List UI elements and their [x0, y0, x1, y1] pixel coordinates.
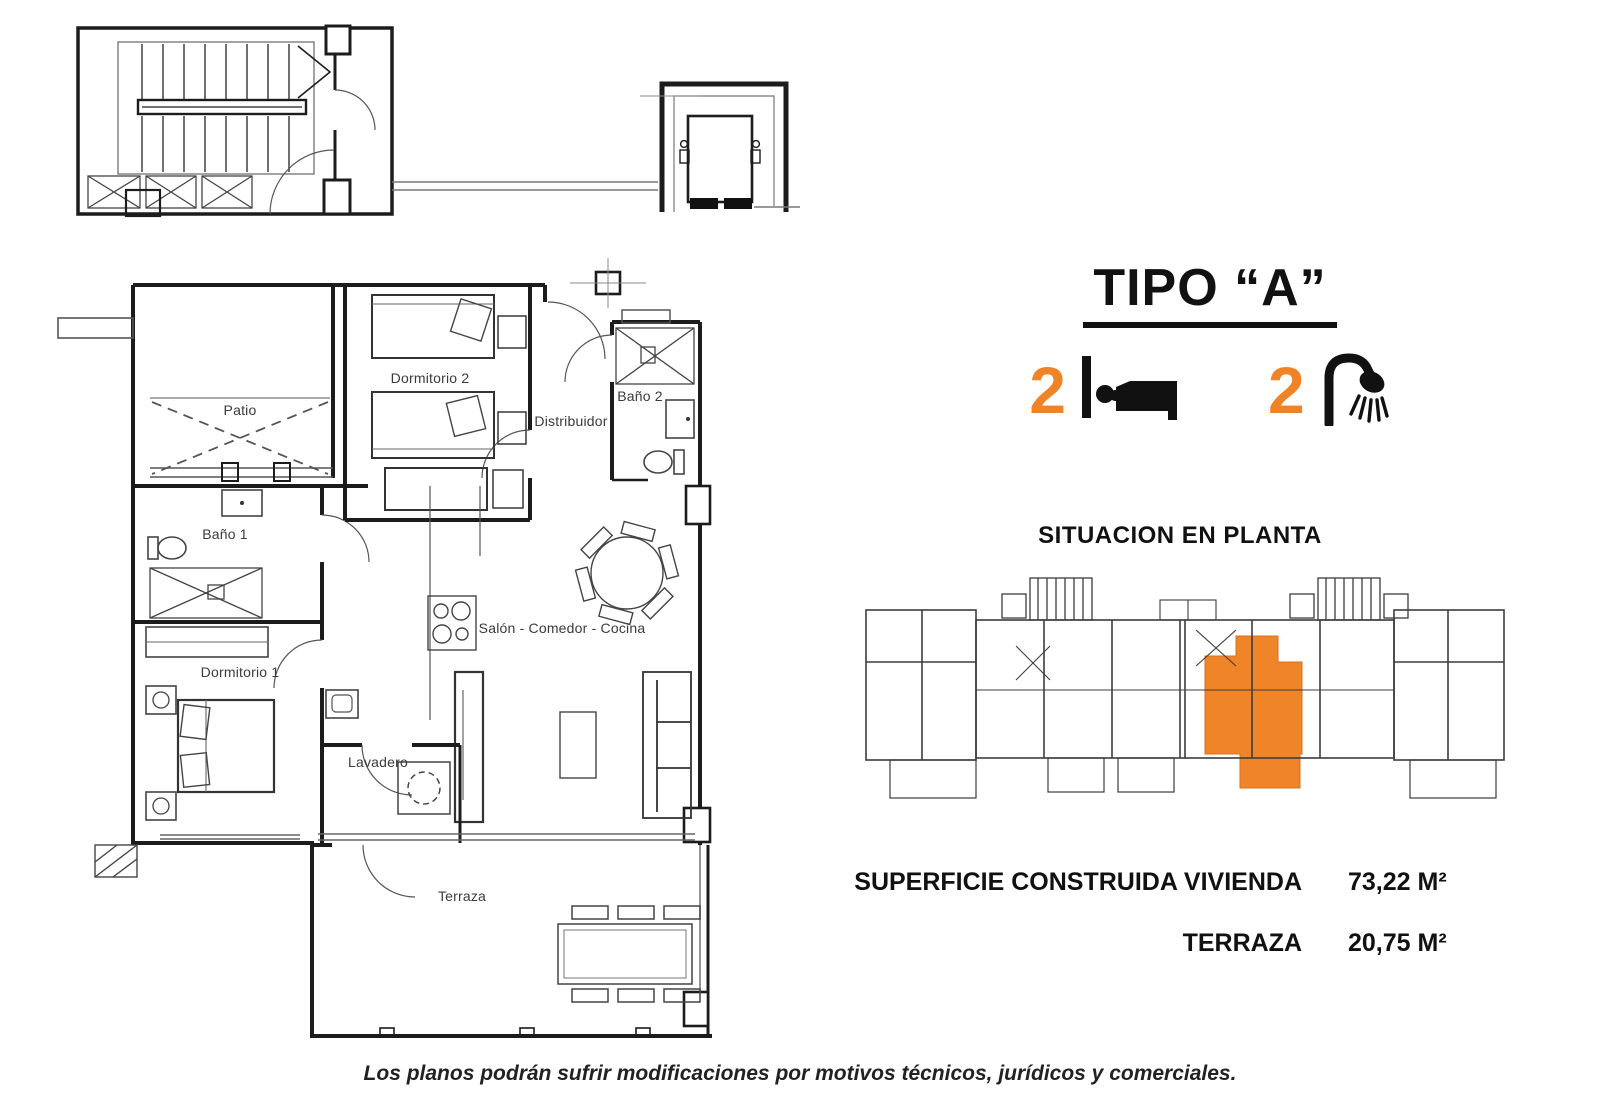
bathroom-1 — [148, 486, 369, 640]
room-label-dormitorio-2: Dormitorio 2 — [391, 370, 470, 386]
room-label-salon: Salón - Comedor - Cocina — [479, 620, 646, 636]
elevator-detail — [640, 84, 800, 212]
area-value-vivienda: 73,22 M² — [1348, 868, 1500, 897]
siteplan-stair-cores — [1002, 578, 1408, 620]
page-title: TIPO “A” — [1083, 258, 1336, 328]
siteplan-highlight-unit — [1205, 636, 1302, 788]
kitchen — [428, 486, 483, 822]
stairwell-detail — [78, 26, 658, 216]
features-row: 2 2 — [960, 348, 1460, 431]
room-label-bano-1: Baño 1 — [202, 526, 248, 542]
patio-room — [133, 285, 368, 486]
hob — [428, 596, 476, 650]
siteplan-heading: SITUACION EN PLANTA — [940, 522, 1420, 550]
bathrooms-feature: 2 — [1268, 348, 1391, 431]
floor-plan-sheet: Patio Dormitorio 2 Baño 2 Distribuidor B… — [0, 0, 1600, 1107]
terrace-table — [558, 906, 700, 1002]
sofa — [643, 672, 691, 818]
shower-tray — [150, 568, 262, 618]
room-label-patio: Patio — [224, 402, 257, 418]
living-dining — [560, 522, 691, 818]
bedrooms-feature: 2 — [1029, 354, 1184, 425]
bedroom-2 — [345, 285, 530, 520]
footer-disclaimer: Los planos podrán sufrir modificaciones … — [0, 1062, 1600, 1086]
terrace — [312, 843, 712, 1038]
siteplan-drawing — [866, 578, 1504, 798]
corner-pillar-hatched — [95, 845, 137, 877]
room-label-bano-2: Baño 2 — [617, 388, 663, 404]
area-label-terraza: TERRAZA — [850, 929, 1302, 958]
title-block: TIPO “A” — [980, 258, 1440, 328]
area-row-vivienda: SUPERFICIE CONSTRUIDA VIVIENDA 73,22 M² — [850, 868, 1500, 897]
room-label-terraza: Terraza — [438, 888, 486, 904]
room-label-distribuidor: Distribuidor — [534, 413, 607, 429]
area-value-terraza: 20,75 M² — [1348, 929, 1500, 958]
area-row-terraza: TERRAZA 20,75 M² — [850, 929, 1500, 958]
room-label-dormitorio-1: Dormitorio 1 — [201, 664, 280, 680]
area-label-vivienda: SUPERFICIE CONSTRUIDA VIVIENDA — [850, 868, 1302, 897]
shower-2 — [616, 328, 694, 384]
room-label-lavadero: Lavadero — [348, 754, 408, 770]
shower-icon — [1319, 348, 1391, 431]
bedroom-count: 2 — [1029, 357, 1066, 423]
areas-table: SUPERFICIE CONSTRUIDA VIVIENDA 73,22 M² … — [850, 868, 1500, 958]
bedroom-1 — [133, 622, 322, 843]
hallway-distribuidor — [545, 285, 605, 359]
bed-icon — [1080, 354, 1184, 425]
bathroom-count: 2 — [1268, 357, 1305, 423]
apartment-plan — [58, 258, 710, 877]
